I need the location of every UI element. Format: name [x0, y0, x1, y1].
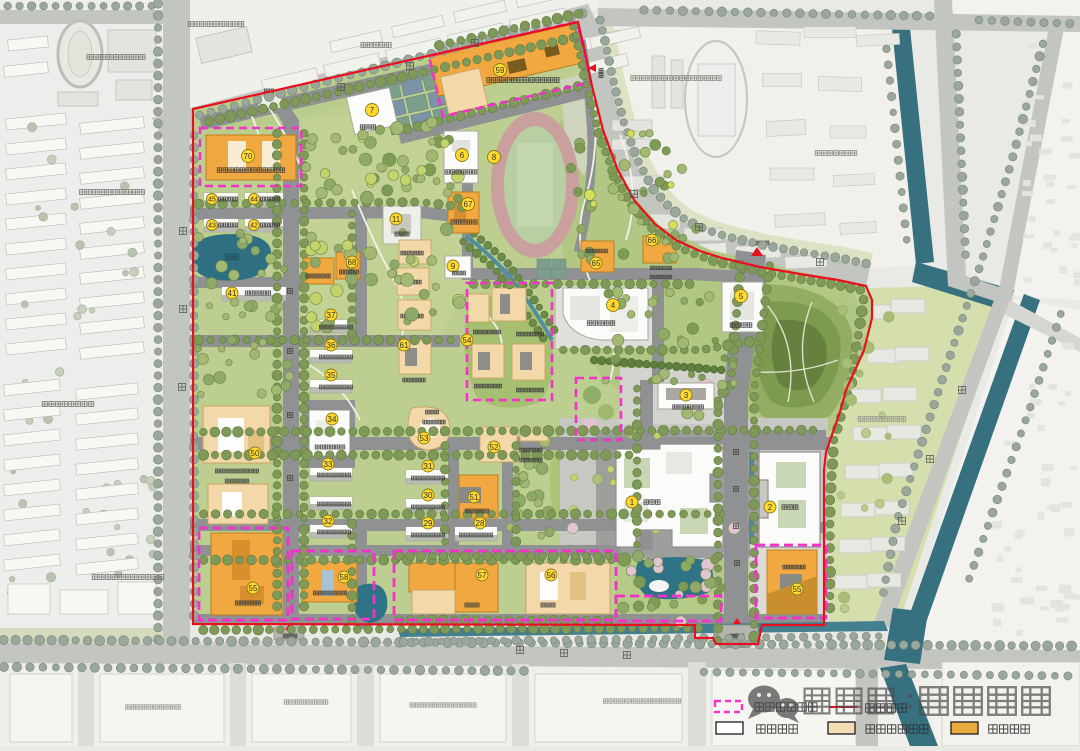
svg-text:8: 8 [492, 153, 497, 162]
svg-text:1: 1 [630, 498, 635, 507]
svg-text:44: 44 [250, 197, 258, 204]
svg-text:2: 2 [768, 503, 773, 512]
svg-text:36: 36 [327, 341, 336, 350]
svg-text:54: 54 [463, 336, 472, 345]
svg-text:51: 51 [470, 493, 479, 502]
svg-text:57: 57 [478, 571, 487, 580]
svg-text:59: 59 [496, 66, 505, 75]
svg-text:53: 53 [420, 434, 429, 443]
svg-text:52: 52 [490, 443, 499, 452]
svg-text:42: 42 [250, 223, 258, 230]
svg-text:50: 50 [251, 449, 260, 458]
svg-text:45: 45 [208, 197, 216, 204]
svg-text:31: 31 [424, 462, 433, 471]
svg-text:56: 56 [547, 571, 556, 580]
svg-text:35: 35 [327, 371, 336, 380]
svg-text:28: 28 [476, 519, 485, 528]
svg-text:33: 33 [324, 460, 333, 469]
svg-text:70: 70 [244, 152, 253, 161]
svg-text:34: 34 [328, 415, 337, 424]
svg-text:11: 11 [392, 215, 401, 224]
svg-text:5: 5 [739, 292, 744, 301]
svg-text:65: 65 [592, 259, 601, 268]
svg-text:32: 32 [324, 517, 333, 526]
svg-text:68: 68 [348, 258, 357, 267]
svg-text:41: 41 [228, 289, 237, 298]
svg-text:6: 6 [460, 151, 465, 160]
svg-text:30: 30 [424, 491, 433, 500]
svg-text:58: 58 [340, 573, 349, 582]
svg-text:61: 61 [400, 341, 409, 350]
svg-text:7: 7 [370, 106, 375, 115]
svg-text:29: 29 [424, 519, 433, 528]
svg-text:66: 66 [648, 236, 657, 245]
svg-text:67: 67 [464, 200, 473, 209]
svg-text:37: 37 [327, 311, 336, 320]
svg-text:4: 4 [611, 301, 616, 310]
svg-text:9: 9 [451, 262, 456, 271]
svg-text:43: 43 [208, 223, 216, 230]
svg-text:55: 55 [249, 584, 258, 593]
svg-text:55: 55 [793, 585, 802, 594]
svg-text:3: 3 [684, 391, 689, 400]
